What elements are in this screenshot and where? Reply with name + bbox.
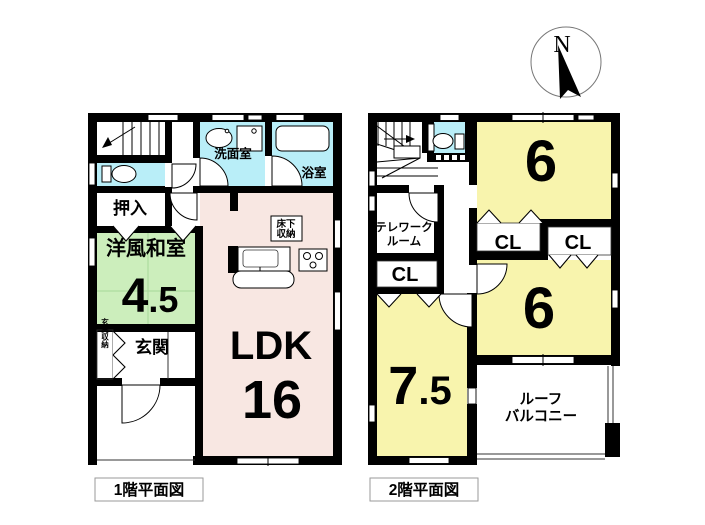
label-cl-right: CL (565, 232, 592, 254)
stair-landing (394, 146, 420, 158)
kitchen-island-icon (233, 271, 294, 288)
label-yokushitsu: 浴室 (301, 165, 327, 180)
floor2-plan: テレワーク ルーム CL CL CL 6 6 7.5 ルーフ バルコニー (368, 112, 620, 465)
floorplan-page: 押入 洋風和室 4.5 玄関 玄関収納 洗面室 浴室 床下 収納 LDK 16 (0, 0, 705, 525)
toilet-bowl-icon (112, 166, 136, 183)
caption-1f: 1階平面図 (114, 481, 185, 499)
faucet-icon (225, 129, 229, 133)
bathtub-icon (276, 126, 329, 151)
compass-north-label: N (553, 32, 570, 58)
door-arc-toilet-1f (172, 164, 196, 188)
label-washitsu: 洋風和室 (106, 236, 186, 260)
label-senmenshitsu: 洗面室 (214, 146, 252, 161)
label-balcony-1: ルーフ (520, 392, 563, 408)
label-room6-bottom: 6 (523, 276, 555, 341)
floorplan-canvas: 押入 洋風和室 4.5 玄関 玄関収納 洗面室 浴室 床下 収納 LDK 16 (0, 0, 705, 525)
door-leaf-toilet-2f (428, 124, 434, 151)
label-cl-left: CL (392, 264, 419, 286)
label-room6-top: 6 (525, 129, 557, 194)
toilet-tank-icon (455, 134, 464, 149)
label-oshiire: 押入 (113, 198, 147, 218)
label-genkan-storage: 玄関収納 (100, 317, 109, 350)
label-yukashita-2: 収納 (276, 228, 295, 240)
washer-dial-icon (252, 129, 256, 133)
door-arc-hall-ldk (170, 193, 197, 220)
door-arc-telework (409, 193, 438, 222)
stairs-1f (102, 122, 159, 155)
door-arc-genkan (122, 385, 160, 423)
label-cl-mid: CL (495, 232, 522, 254)
label-genkan: 玄関 (135, 337, 169, 357)
label-ldk-size: 16 (242, 370, 302, 430)
toilet-bowl-icon (433, 134, 453, 149)
captions: 1階平面図 2階平面図 (95, 478, 478, 501)
label-balcony-2: バルコニー (505, 408, 577, 425)
label-telework-1: テレワーク (375, 221, 433, 234)
label-telework-2: ルーム (387, 235, 422, 248)
toilet-tank-icon (102, 166, 111, 182)
compass: N (531, 27, 601, 99)
folding-door-icon (113, 331, 125, 355)
floor1-plan: 押入 洋風和室 4.5 玄関 玄関収納 洗面室 浴室 床下 収納 LDK 16 (88, 113, 342, 466)
caption-2f: 2階平面図 (389, 481, 460, 499)
label-ldk: LDK (230, 324, 312, 368)
folding-door-icon (113, 355, 125, 379)
